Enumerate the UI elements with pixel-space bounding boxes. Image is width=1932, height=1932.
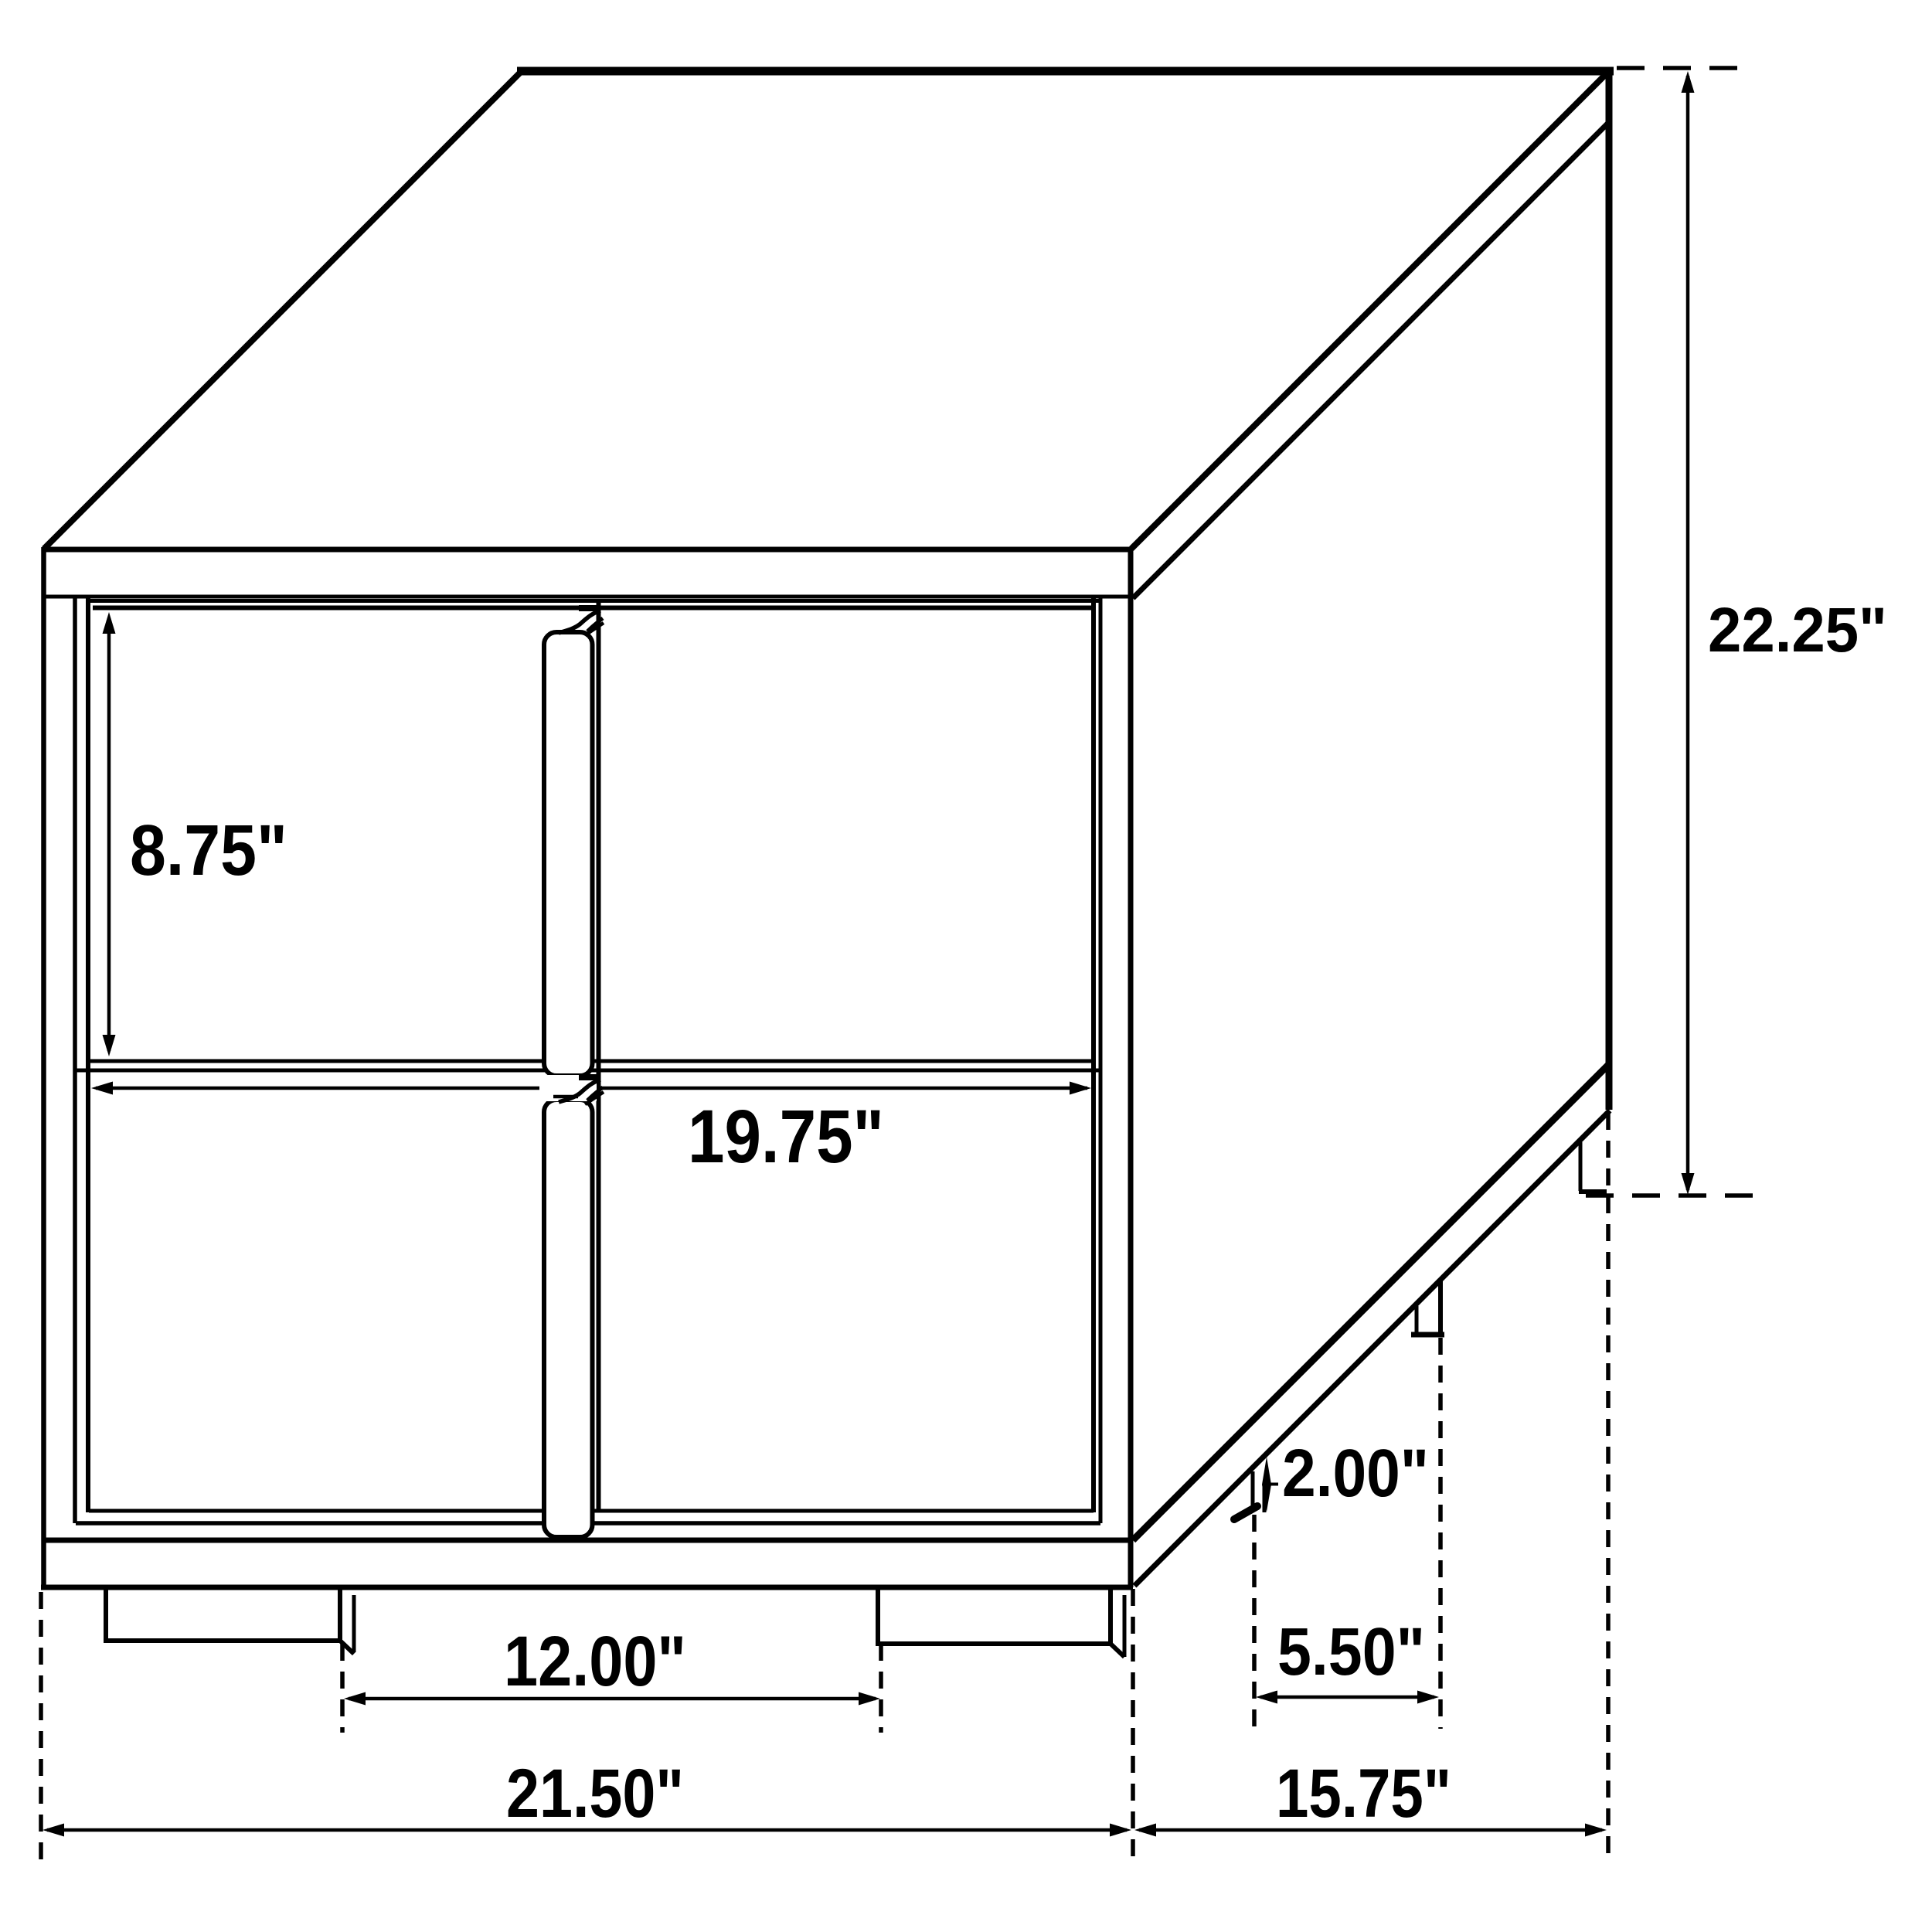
svg-text:5.50": 5.50" xyxy=(1277,1614,1425,1689)
svg-text:12.00": 12.00" xyxy=(504,1622,686,1701)
svg-text:15.75": 15.75" xyxy=(1276,1754,1451,1832)
svg-text:22.25": 22.25" xyxy=(1708,595,1887,665)
svg-text:19.75": 19.75" xyxy=(688,1094,884,1179)
svg-text:2.00": 2.00" xyxy=(1282,1436,1429,1511)
svg-text:21.50": 21.50" xyxy=(506,1754,684,1832)
svg-text:8.75": 8.75" xyxy=(130,810,287,890)
